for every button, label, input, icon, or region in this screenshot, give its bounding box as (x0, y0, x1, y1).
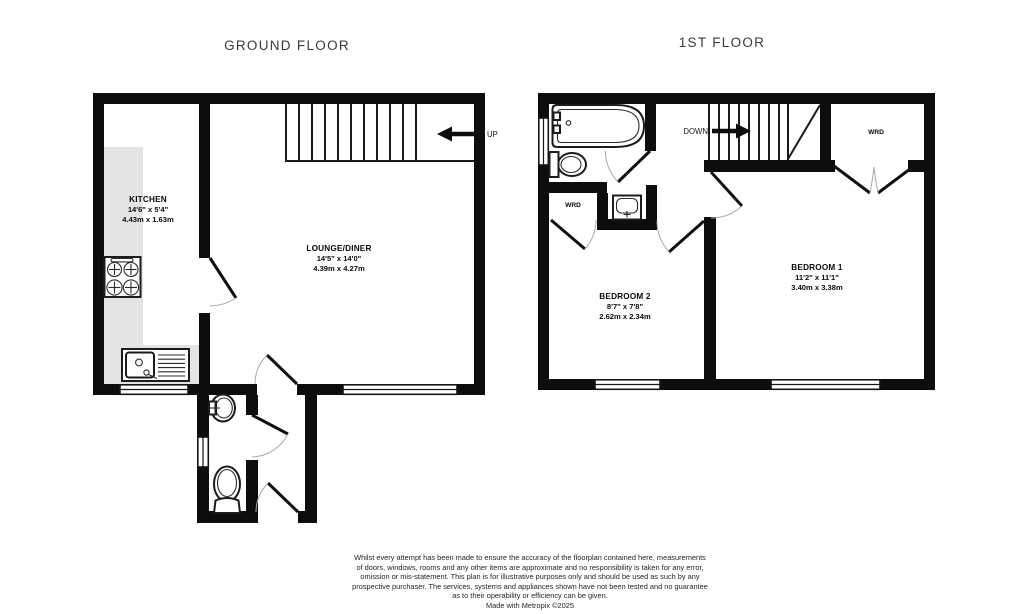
ground-floor-walls (93, 93, 485, 523)
wardrobe2-door (551, 220, 596, 249)
kitchen-door (210, 258, 236, 306)
front-door (256, 483, 298, 512)
floorplan-canvas: GROUND FLOOR (0, 0, 1024, 614)
bedroom2-name: BEDROOM 2 (599, 292, 651, 301)
disclaimer-line: Whilst every attempt has been made to en… (262, 553, 798, 563)
lounge-hall-door (255, 355, 297, 384)
bedroom2-metric: 2.62m x 2.34m (599, 312, 651, 321)
bedroom2-window (595, 380, 660, 390)
wc-window (198, 437, 209, 467)
disclaimer-line: prospective purchaser. The services, sys… (262, 582, 798, 592)
kitchen-label: KITCHEN 14'6" x 5'4" 4.43m x 1.63m (122, 195, 174, 224)
down-arrow-icon (712, 124, 751, 139)
landing-basin-icon (613, 196, 641, 220)
bedroom1-door (711, 172, 742, 218)
disclaimer-text: Whilst every attempt has been made to en… (262, 553, 798, 611)
lounge-window (343, 385, 457, 395)
bathroom-window (539, 118, 549, 165)
disclaimer-line: omission or mis-statement. This plan is … (262, 572, 798, 582)
kitchen-metric: 4.43m x 1.63m (122, 215, 174, 224)
kitchen-name: KITCHEN (129, 195, 167, 204)
first-floor-plan: 1ST FLOOR (538, 35, 935, 390)
kitchen-window (120, 385, 188, 395)
lounge-label: LOUNGE/DINER 14'5" x 14'0" 4.39m x 4.27m (306, 244, 371, 273)
bathroom-toilet-icon (550, 152, 587, 177)
bedroom1-imperial: 11'2" x 11'1" (795, 273, 839, 282)
up-arrow-icon (437, 127, 474, 142)
bedroom2-imperial: 8'7" x 7'8" (607, 302, 644, 311)
ground-floor-title: GROUND FLOOR (224, 38, 350, 53)
floorplan-page: GROUND FLOOR (0, 0, 1024, 614)
lounge-metric: 4.39m x 4.27m (313, 264, 365, 273)
wc-toilet-icon (214, 467, 240, 514)
wc-door (252, 415, 288, 457)
first-floor-stairs: DOWN (683, 104, 820, 160)
bedroom1-label: BEDROOM 1 11'2" x 11'1" 3.40m x 3.38m (791, 263, 843, 292)
first-floor-title: 1ST FLOOR (679, 35, 765, 50)
bathtub-icon (553, 105, 645, 147)
disclaimer-credit: Made with Metropix ©2025 (262, 601, 798, 611)
ground-floor-stairs: UP (285, 104, 498, 161)
bedroom1-window (771, 380, 880, 390)
kitchen-imperial: 14'6" x 5'4" (128, 205, 169, 214)
bedroom2-door (657, 221, 704, 252)
wardrobe1-label: WRD (868, 129, 884, 136)
wc-basin-icon (209, 395, 235, 422)
disclaimer-line: of doors, windows, rooms and any other i… (262, 563, 798, 573)
ground-floor-plan: GROUND FLOOR (93, 38, 498, 523)
bedroom2-label: BEDROOM 2 8'7" x 7'8" 2.62m x 2.34m (599, 292, 651, 321)
bedroom1-name: BEDROOM 1 (791, 263, 843, 272)
bathroom-door (605, 151, 650, 182)
down-label: DOWN (683, 127, 708, 136)
hob-icon (105, 257, 141, 297)
up-label: UP (487, 130, 498, 139)
lounge-imperial: 14'5" x 14'0" (317, 254, 362, 263)
wardrobe1-doors (834, 166, 914, 193)
disclaimer-line: as to their operability or efficiency ca… (262, 591, 798, 601)
lounge-name: LOUNGE/DINER (306, 244, 371, 253)
kitchen-sink-icon (122, 349, 189, 381)
bedroom1-metric: 3.40m x 3.38m (791, 283, 843, 292)
wardrobe2-label: WRD (565, 202, 581, 209)
